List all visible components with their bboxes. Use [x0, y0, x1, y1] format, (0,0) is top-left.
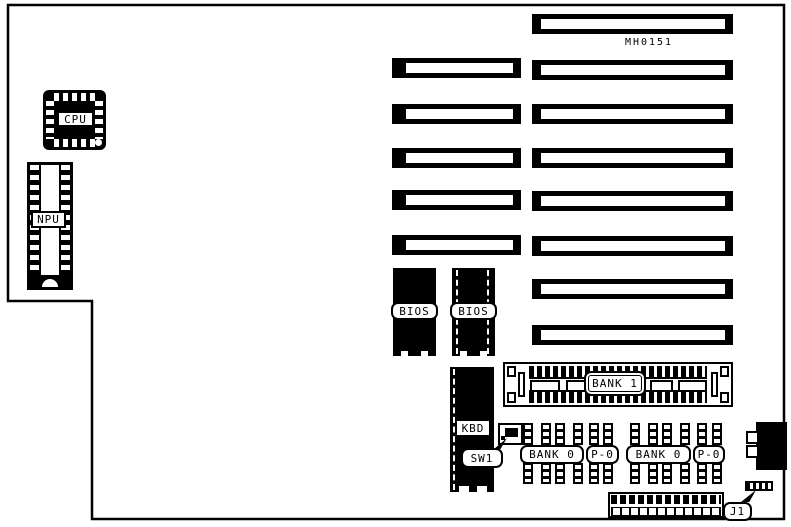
- expansion-slot: [532, 148, 733, 168]
- pin-row-top-icon: [611, 495, 721, 504]
- chip-notch: [401, 351, 408, 356]
- dram-chip: [697, 423, 722, 445]
- j1-label: J1: [723, 502, 752, 521]
- socket-clip: [711, 372, 718, 397]
- model-number-label: MH0151: [617, 36, 681, 49]
- dram-chip: [589, 463, 613, 484]
- dram-chip: [630, 463, 658, 484]
- bank1-label: BANK 1: [584, 371, 646, 396]
- connector-notch: [477, 486, 487, 492]
- switch-lever: [505, 428, 518, 437]
- jumper-block-j1: [745, 481, 773, 491]
- expansion-slot: [392, 148, 521, 168]
- socket-slat: [530, 380, 560, 392]
- bank0-label: BANK 0: [520, 445, 584, 464]
- cpu-pins-left-icon: [46, 101, 54, 139]
- connector-notch: [459, 486, 469, 492]
- expansion-slot: [532, 279, 733, 299]
- pin1-indicator-dot: [95, 139, 102, 146]
- cpu-pins-top-icon: [54, 93, 95, 101]
- kbd-label: KBD: [455, 419, 491, 437]
- socket-clip: [507, 366, 516, 377]
- bank0-label: BANK 0: [626, 445, 691, 464]
- socket-slat: [650, 380, 673, 392]
- cpu-label: CPU: [57, 111, 94, 127]
- socket-clip: [720, 392, 729, 403]
- din-keyboard-connector: [756, 422, 787, 470]
- expansion-slot: [532, 191, 733, 211]
- switch-mark: [501, 436, 505, 440]
- cpu-pins-right-icon: [95, 101, 103, 139]
- pin-row-bottom-icon: [611, 507, 721, 516]
- dram-chip: [555, 423, 583, 445]
- p0-label: P-0: [693, 445, 725, 464]
- dram-chip: [662, 463, 690, 484]
- dram-chip: [523, 463, 551, 484]
- chip-notch: [460, 351, 467, 356]
- npu-orientation-notch: [42, 279, 58, 287]
- dram-chip: [555, 463, 583, 484]
- p0-label: P-0: [586, 445, 619, 464]
- dram-chip: [523, 423, 551, 445]
- dram-chip: [589, 423, 613, 445]
- dram-chip: [630, 423, 658, 445]
- chip-notch: [421, 351, 428, 356]
- dram-chip: [697, 463, 722, 484]
- expansion-slot: [532, 236, 733, 256]
- dip-switch-icon: [498, 423, 523, 445]
- expansion-slot: [392, 190, 521, 210]
- expansion-slot: [392, 104, 521, 124]
- expansion-slot: [532, 60, 733, 80]
- socket-clip: [720, 366, 729, 377]
- bios-label: BIOS: [391, 302, 438, 320]
- motherboard-diagram: MH0151 CPU NPU BIOS BIOS: [0, 0, 791, 527]
- expansion-slot: [532, 325, 733, 345]
- connector-clip: [746, 445, 759, 458]
- socket-slat: [678, 380, 707, 392]
- expansion-slot: [392, 235, 521, 255]
- chip-notch: [480, 351, 487, 356]
- socket-clip: [518, 372, 525, 397]
- expansion-slot: [532, 14, 733, 34]
- sw1-label: SW1: [461, 448, 503, 468]
- bios-label: BIOS: [450, 302, 497, 320]
- npu-bottom-band: [30, 275, 70, 287]
- npu-label: NPU: [31, 211, 66, 228]
- expansion-slot: [392, 58, 521, 78]
- expansion-slot: [532, 104, 733, 124]
- cpu-pins-bottom-icon: [54, 139, 95, 147]
- pin-header-connector: [608, 492, 724, 518]
- dram-chip: [662, 423, 690, 445]
- socket-clip: [507, 392, 516, 403]
- connector-clip: [746, 431, 759, 444]
